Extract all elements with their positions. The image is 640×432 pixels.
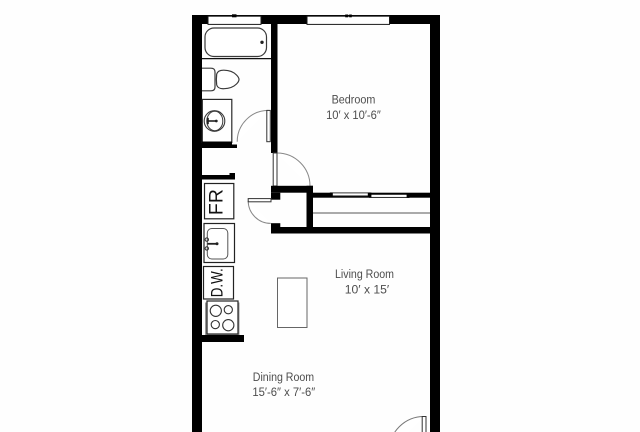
svg-text:10′ x 15′: 10′ x 15′ xyxy=(345,282,390,296)
svg-text:15′-6″ x 7′-6″: 15′-6″ x 7′-6″ xyxy=(252,385,315,399)
svg-text:Dining Room: Dining Room xyxy=(253,370,314,384)
svg-text:Bedroom: Bedroom xyxy=(332,93,376,107)
svg-text:Living Room: Living Room xyxy=(335,267,394,281)
svg-text:FR: FR xyxy=(207,189,228,215)
svg-text:D.W.: D.W. xyxy=(208,268,227,297)
svg-text:10′ x 10′-6″: 10′ x 10′-6″ xyxy=(326,108,381,122)
